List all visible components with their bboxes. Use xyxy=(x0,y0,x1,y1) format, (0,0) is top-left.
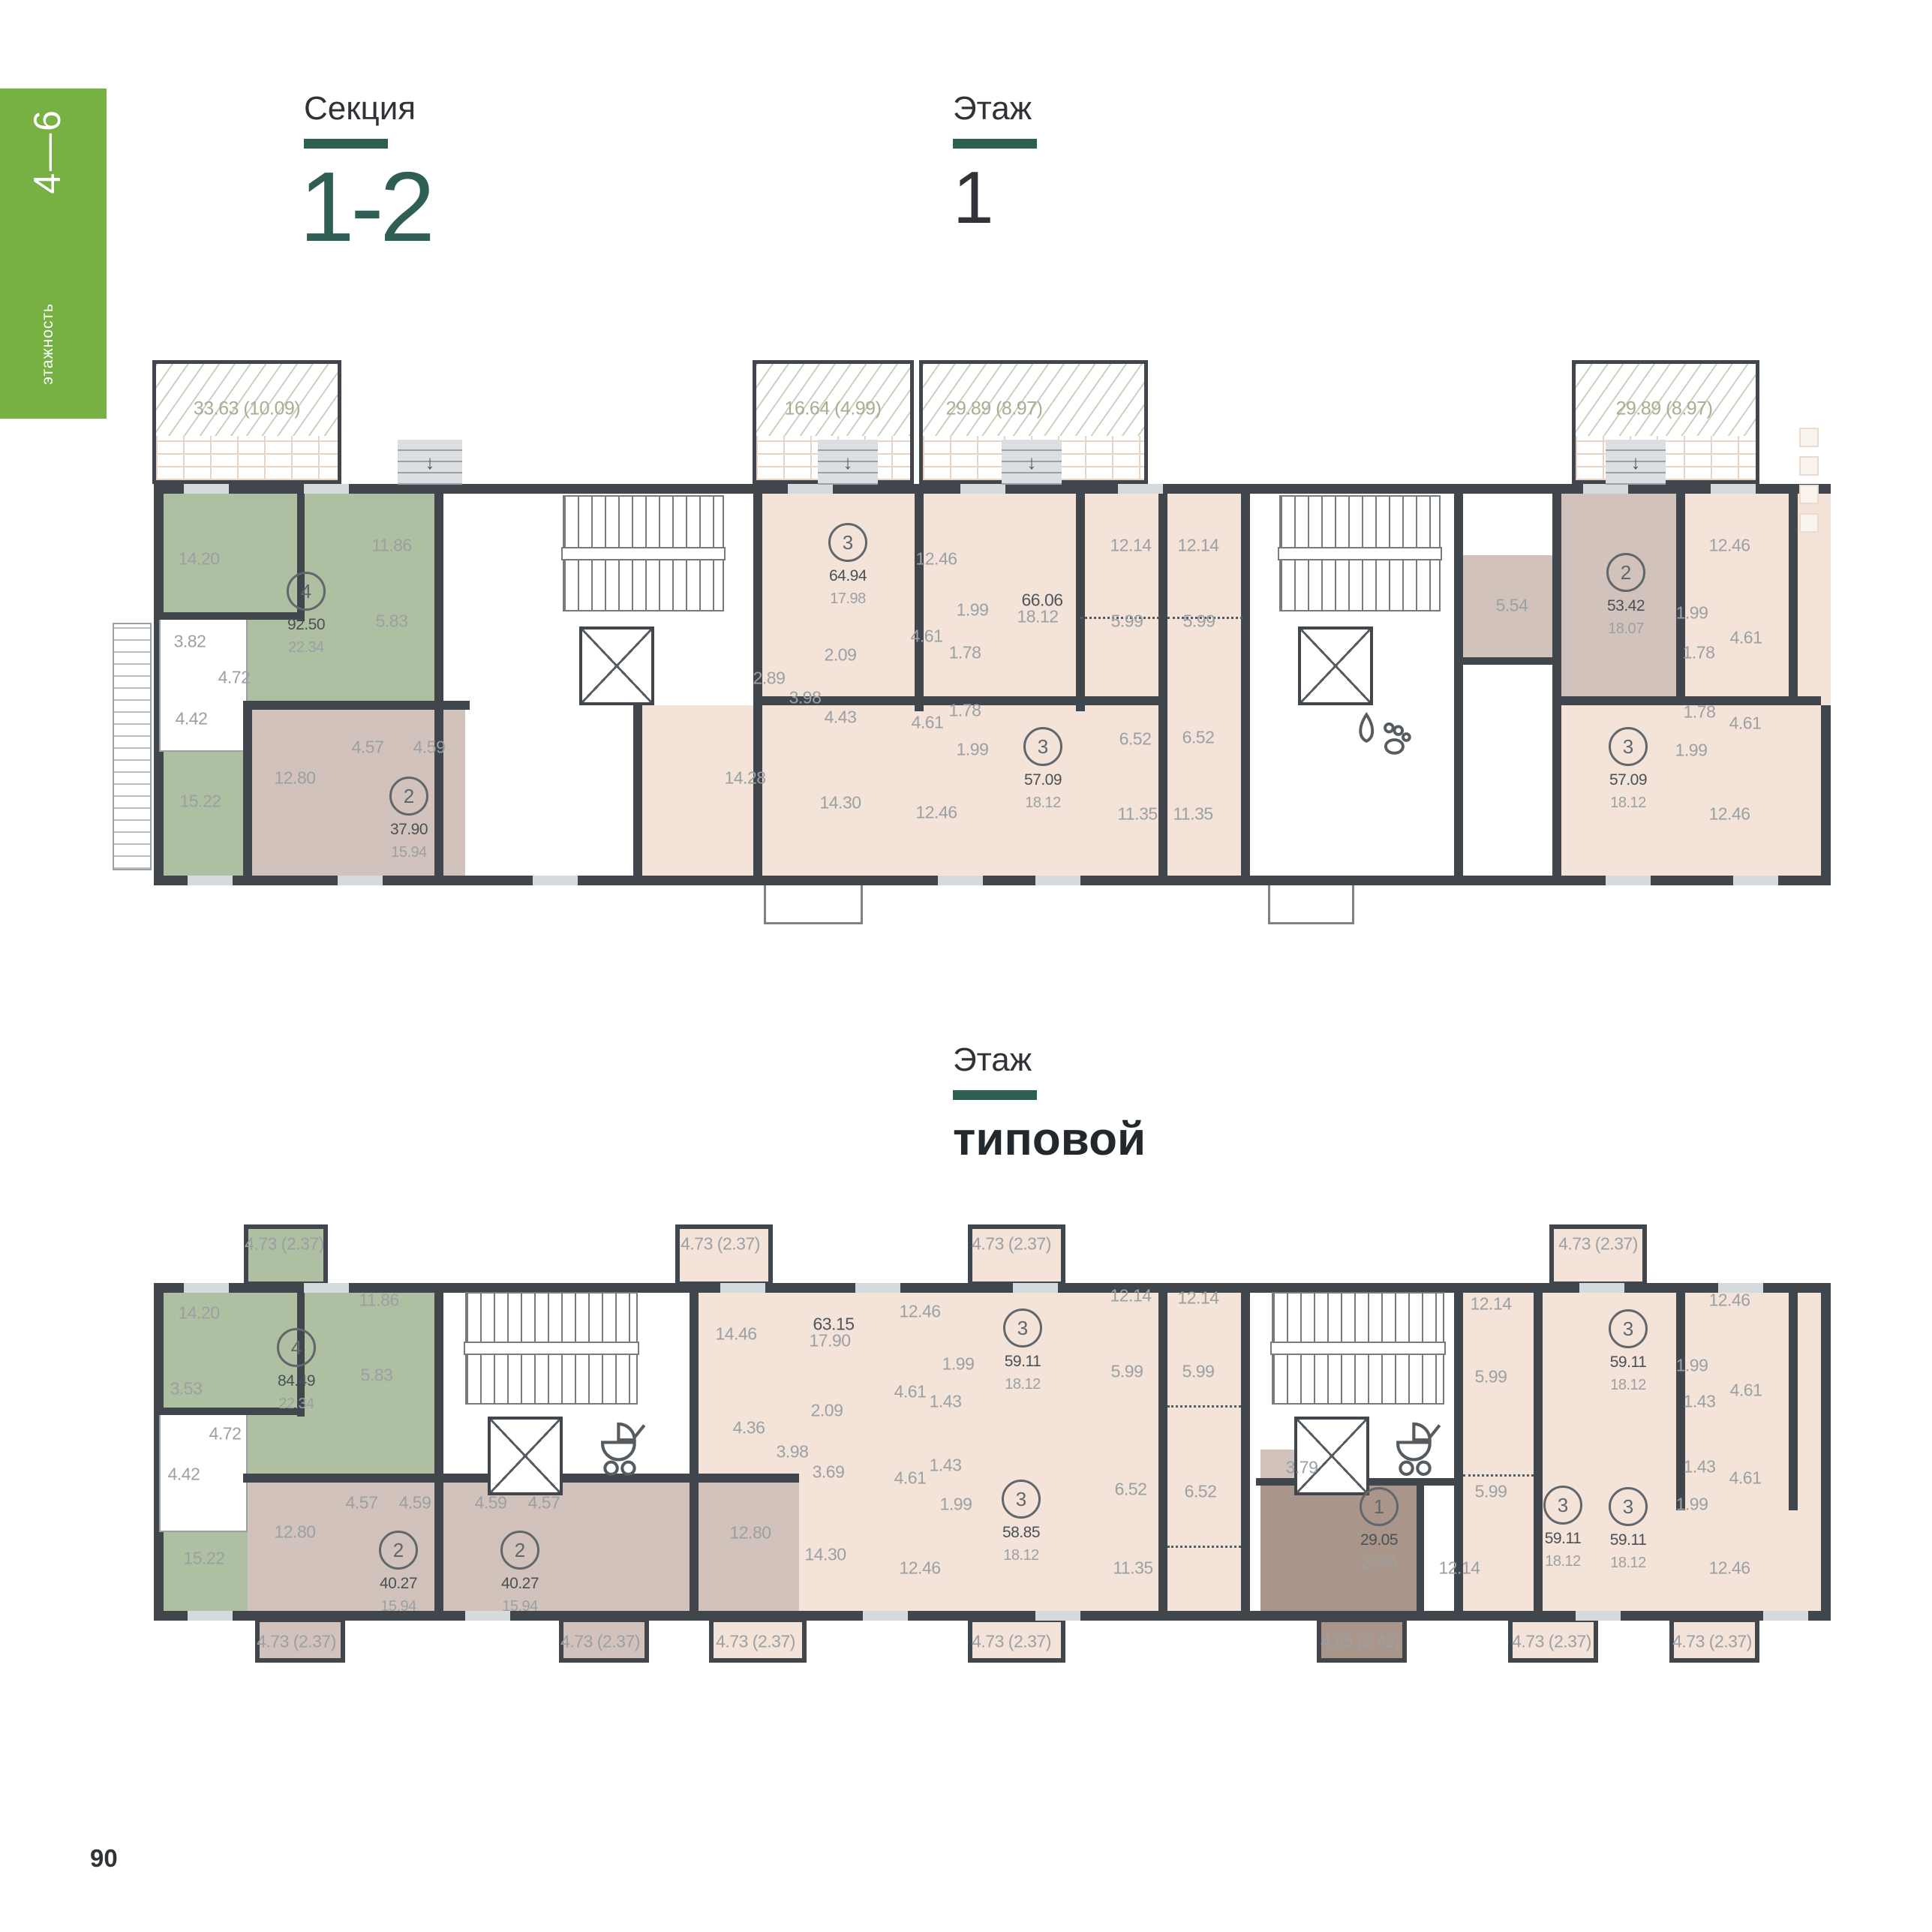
apartment-region xyxy=(1557,705,1821,876)
section-underline xyxy=(304,139,388,149)
apartment-living-area: 18.12 xyxy=(1610,1555,1646,1572)
elevator xyxy=(1294,1417,1369,1495)
room-area-label: 1.43 xyxy=(930,1457,962,1474)
legend-square xyxy=(1799,456,1819,476)
room-area-label: 12.46 xyxy=(915,804,957,822)
room-area-label: 4.73 (2.37) xyxy=(681,1236,760,1253)
window-opening xyxy=(1733,876,1778,885)
wall xyxy=(159,612,302,620)
room-area-label: 12.80 xyxy=(274,770,315,787)
apartment-total-area: 59.11 xyxy=(1610,1354,1647,1372)
apartment-living-area: 18.12 xyxy=(1025,795,1061,812)
apartment-living-area: 18.12 xyxy=(1003,1547,1039,1564)
apartment-badge: 359.1118.12 xyxy=(1609,1309,1648,1394)
dashed-divider xyxy=(1463,1474,1534,1477)
window-opening xyxy=(304,484,349,494)
wall xyxy=(1789,494,1798,705)
apartment-number: 3 xyxy=(828,523,867,562)
room-area-label: 1.78 xyxy=(1683,645,1715,662)
room-area-label: 5.99 xyxy=(1183,613,1215,630)
stroller-icon xyxy=(1388,1417,1442,1478)
room-area-label: 11.86 xyxy=(359,1292,398,1309)
window-opening xyxy=(188,1611,233,1621)
apartment-number: 3 xyxy=(1002,1480,1041,1519)
wall xyxy=(633,705,642,876)
window-opening xyxy=(338,876,383,885)
window-opening xyxy=(1606,876,1651,885)
wall xyxy=(1417,1484,1424,1611)
elevator xyxy=(488,1417,563,1495)
apartment-living-area: 22.34 xyxy=(288,639,324,657)
room-area-label: 4.43 xyxy=(825,709,857,726)
entrance-porch xyxy=(1268,882,1354,924)
room-area-label: 17.90 xyxy=(809,1333,850,1350)
terrace-area-label: 29.89 (8.97) xyxy=(1616,400,1713,419)
window-opening xyxy=(533,876,578,885)
room-area-label: 5.54 xyxy=(1496,597,1528,614)
room-area-label: 3.53 xyxy=(170,1381,203,1398)
apartment-number: 3 xyxy=(1023,727,1062,766)
dashed-divider xyxy=(1167,1546,1241,1548)
apartment-total-area: 59.11 xyxy=(1005,1353,1041,1371)
room-area-label: 14.30 xyxy=(819,795,861,812)
wall xyxy=(1459,657,1557,665)
room-area-label: 6.52 xyxy=(1185,1483,1217,1501)
apartment-total-area: 92.50 xyxy=(287,616,325,634)
wall xyxy=(434,494,443,876)
room-area-label: 1.99 xyxy=(942,1356,975,1373)
apartment-number: 3 xyxy=(1003,1309,1042,1348)
apartment-number: 4 xyxy=(287,572,326,611)
room-area-label: 4.57 xyxy=(528,1495,560,1512)
room-area-label: 14.20 xyxy=(178,551,219,568)
room-area-label: 1.99 xyxy=(957,602,989,619)
room-area-label: 1.43 xyxy=(1684,1459,1716,1476)
apartment-living-area: 18.12 xyxy=(1610,1377,1646,1394)
room-area-label: 3.98 xyxy=(777,1444,809,1461)
wall xyxy=(1076,494,1085,711)
wall xyxy=(1158,1293,1167,1611)
room-area-label: 4.61 xyxy=(894,1470,927,1487)
floor-plan-1: ↓↓↓↓33.63 (10.09)16.64 (4.99)29.89 (8.97… xyxy=(113,353,1831,945)
staircase xyxy=(563,495,724,611)
wall xyxy=(1454,494,1463,876)
terrace-area-label: 16.64 (4.99) xyxy=(785,400,882,419)
apartment-number: 3 xyxy=(1543,1486,1582,1525)
apartment-region xyxy=(248,705,465,876)
room-area-label: 4.73 (2.37) xyxy=(1512,1633,1591,1651)
room-area-label: 6.52 xyxy=(1182,729,1215,747)
room-area-label: 3.98 xyxy=(789,690,822,707)
room-area-label: 12.46 xyxy=(1708,537,1750,554)
room-area-label: 12.46 xyxy=(899,1303,940,1321)
wall xyxy=(1241,494,1250,876)
room-area-label: 4.73 (2.37) xyxy=(972,1633,1051,1651)
room-area-label: 11.35 xyxy=(1173,806,1212,823)
stroller-icon xyxy=(593,1417,647,1478)
staircase xyxy=(465,1292,638,1405)
room-area-label: 6.52 xyxy=(1119,731,1152,748)
floor-plan-typical: 4.73 (2.37)4.73 (2.37)4.73 (2.37)4.73 (2… xyxy=(113,1215,1831,1786)
window-opening xyxy=(938,876,983,885)
apartment-badge: 358.8518.12 xyxy=(1002,1480,1041,1564)
room-area-label: 12.46 xyxy=(915,551,957,568)
room-area-label: 4.73 (2.37) xyxy=(1558,1236,1638,1253)
window-opening xyxy=(720,1283,765,1293)
room-area-label: 14.20 xyxy=(178,1305,219,1322)
staircase xyxy=(1272,1292,1444,1405)
room-area-label: 12.14 xyxy=(1110,1287,1151,1305)
room-area-label: 12.46 xyxy=(1708,1292,1750,1309)
apartment-number: 3 xyxy=(1609,727,1648,766)
room-area-label: 1.78 xyxy=(1684,704,1716,721)
room-area-label: 2.09 xyxy=(825,647,857,664)
room-area-label: 5.99 xyxy=(1111,1363,1143,1381)
room-area-label: 1.99 xyxy=(940,1496,972,1513)
room-area-label: 4.85 (2.42) xyxy=(1321,1633,1400,1651)
apartment-number: 4 xyxy=(277,1328,316,1367)
entrance-steps: ↓ xyxy=(398,440,462,485)
apartment-region xyxy=(638,705,758,876)
room-area-label: 4.61 xyxy=(1729,715,1762,732)
room-area-label: 12.14 xyxy=(1470,1296,1511,1313)
room-area-label: 11.86 xyxy=(371,537,411,554)
typical-floor-underline xyxy=(953,1090,1037,1100)
room-area-label: 15.22 xyxy=(183,1550,224,1567)
apartment-badge: 240.2715.94 xyxy=(379,1531,418,1615)
room-area-label: 1.99 xyxy=(1676,605,1708,622)
page-number: 90 xyxy=(90,1844,118,1873)
window-opening xyxy=(304,1283,349,1293)
room-area-label: 4.61 xyxy=(911,628,943,645)
room-area-label: 4.59 xyxy=(413,739,446,756)
room-area-label: 12.46 xyxy=(899,1560,940,1577)
wall xyxy=(915,494,924,711)
apartment-living-area: 18.07 xyxy=(1608,620,1644,638)
elevator xyxy=(1298,626,1373,705)
legend-square xyxy=(1799,513,1819,533)
apartment-badge: 359.1118.12 xyxy=(1609,1487,1648,1572)
apartment-number: 2 xyxy=(1606,553,1645,592)
section-header: Секция 1-2 xyxy=(304,90,431,257)
room-area-label: 1.78 xyxy=(949,702,981,720)
room-area-label: 5.99 xyxy=(1111,613,1143,630)
window-opening xyxy=(1035,1611,1080,1621)
room-area-label: 2.89 xyxy=(753,670,786,687)
room-area-label: 5.99 xyxy=(1475,1369,1507,1386)
room-area-label: 1.99 xyxy=(957,741,989,759)
wall xyxy=(1534,1293,1543,1611)
staircase xyxy=(1279,495,1441,611)
room-area-label: 4.61 xyxy=(1730,629,1762,647)
room-area-label: 4.57 xyxy=(352,739,384,756)
apartment-living-area: 17.98 xyxy=(830,590,866,608)
wall xyxy=(1552,494,1561,876)
room-area-label: 12.14 xyxy=(1177,537,1218,554)
window-opening xyxy=(1035,876,1080,885)
room-area-label: 5.99 xyxy=(1475,1483,1507,1501)
apartment-living-area: 22.34 xyxy=(278,1396,314,1413)
window-opening xyxy=(188,876,233,885)
window-opening xyxy=(1576,1611,1621,1621)
room-area-label: 4.73 (2.37) xyxy=(716,1633,795,1651)
room-area-label: 4.72 xyxy=(218,669,251,687)
terrace-area-label: 33.63 (10.09) xyxy=(194,400,300,419)
room-area-label: 12.14 xyxy=(1438,1560,1480,1577)
apartment-number: 2 xyxy=(389,777,428,816)
apartment-total-area: 59.11 xyxy=(1610,1531,1647,1549)
window-opening xyxy=(1579,1283,1624,1293)
apartment-total-area: 59.11 xyxy=(1545,1530,1582,1548)
room-area-label: 4.42 xyxy=(168,1466,200,1483)
room-area-label: 4.73 (2.37) xyxy=(972,1236,1051,1253)
window-opening xyxy=(1711,484,1756,494)
terrace-area xyxy=(1572,360,1759,484)
room-area-label: 4.57 xyxy=(346,1495,378,1512)
room-area-label: 6.52 xyxy=(1115,1481,1147,1498)
wall xyxy=(690,1293,699,1611)
apartment-number: 2 xyxy=(500,1531,539,1570)
legend-square xyxy=(1799,428,1819,447)
floors-range-label: 4—6 xyxy=(26,108,69,194)
window-opening xyxy=(855,1283,900,1293)
room-area-label: 4.73 (2.37) xyxy=(1672,1633,1752,1651)
legend-square xyxy=(1799,485,1819,504)
room-area-label: 1.99 xyxy=(1676,1357,1708,1375)
apartment-badge: 484.4922.34 xyxy=(277,1328,316,1413)
room-area-label: 12.80 xyxy=(729,1525,771,1542)
apartment-total-area: 40.27 xyxy=(380,1575,417,1593)
room-area-label: 1.78 xyxy=(949,645,981,662)
room-area-label: 12.14 xyxy=(1177,1290,1218,1307)
window-opening xyxy=(863,1611,908,1621)
room-area-label: 4.73 (2.37) xyxy=(257,1633,336,1651)
room-area-label: 11.35 xyxy=(1113,1560,1152,1577)
floor-value: 1 xyxy=(953,161,1037,234)
wall xyxy=(243,705,252,876)
room-area-label: 1.43 xyxy=(930,1393,962,1411)
apartment-living-area: 15.94 xyxy=(391,844,427,861)
room-area-label: 14.28 xyxy=(724,770,765,787)
room-area-label: 12.80 xyxy=(274,1524,315,1541)
room-area-label: 11.35 xyxy=(1117,806,1157,823)
apartment-number: 3 xyxy=(1609,1309,1648,1348)
apartment-badge: 129.0522.84 xyxy=(1360,1487,1399,1572)
apartment-living-area: 22.84 xyxy=(1361,1555,1397,1572)
room-area-label: 5.99 xyxy=(1182,1363,1215,1381)
room-area-label: 18.12 xyxy=(1017,608,1058,626)
floors-word-label: этажность xyxy=(39,303,57,385)
room-area-label: 1.99 xyxy=(1676,1496,1708,1513)
apartment-number: 2 xyxy=(379,1531,418,1570)
apartment-number: 3 xyxy=(1609,1487,1648,1526)
room-area-label: 15.22 xyxy=(179,793,221,810)
apartment-badge: 253.4218.07 xyxy=(1606,553,1645,638)
apartment-badge: 359.1118.12 xyxy=(1543,1486,1582,1570)
window-opening xyxy=(1583,484,1628,494)
window-opening xyxy=(1013,1283,1058,1293)
room-area-label: 1.43 xyxy=(1684,1393,1716,1411)
room-area-label: 5.83 xyxy=(361,1367,393,1384)
floor-header: Этаж 1 xyxy=(953,90,1037,234)
apartment-badge: 357.0918.12 xyxy=(1609,727,1648,812)
room-area-label: 4.73 (2.37) xyxy=(560,1633,640,1651)
window-opening xyxy=(1118,484,1163,494)
external-stair xyxy=(113,623,152,870)
wall xyxy=(1789,1293,1798,1510)
room-area-label: 4.59 xyxy=(399,1495,431,1512)
apartment-living-area: 18.12 xyxy=(1610,795,1646,812)
apartment-region xyxy=(1163,1293,1241,1611)
floors-side-tab: 4—6 этажность xyxy=(0,89,107,419)
room-area-label: 4.61 xyxy=(894,1384,927,1401)
room-area-label: 4.61 xyxy=(1730,1382,1762,1399)
entrance-steps: ↓ xyxy=(818,440,878,485)
window-opening xyxy=(788,484,833,494)
apartment-total-area: 40.27 xyxy=(501,1575,539,1593)
room-area-label: 4.36 xyxy=(733,1420,765,1437)
wall xyxy=(1241,1293,1250,1611)
window-opening xyxy=(1763,1611,1808,1621)
apartment-badge: 492.5022.34 xyxy=(287,572,326,657)
wall xyxy=(434,1293,443,1611)
room-area-label: 4.61 xyxy=(1729,1470,1762,1487)
elevator xyxy=(579,626,654,705)
apartment-living-area: 18.12 xyxy=(1005,1376,1041,1393)
entrance-porch xyxy=(764,882,863,924)
apartment-living-area: 18.12 xyxy=(1545,1553,1581,1570)
room-area-label: 4.72 xyxy=(209,1426,242,1443)
wall xyxy=(243,701,470,710)
wall xyxy=(1676,494,1685,705)
room-area-label: 12.46 xyxy=(1708,1560,1750,1577)
window-opening xyxy=(184,1283,229,1293)
room-area-label: 3.79 xyxy=(1286,1459,1318,1477)
room-area-label: 12.46 xyxy=(1708,806,1750,823)
apartment-badge: 364.9417.98 xyxy=(828,523,867,608)
room-area-label: 4.73 (2.37) xyxy=(245,1236,324,1253)
typical-floor-value: типовой xyxy=(953,1116,1146,1163)
apartment-total-area: 57.09 xyxy=(1609,771,1647,789)
room-area-label: 1.99 xyxy=(1675,742,1708,759)
room-area-label: 4.61 xyxy=(912,714,944,732)
apartment-total-area: 64.94 xyxy=(829,567,867,585)
room-area-label: 14.30 xyxy=(804,1546,846,1564)
apartment-living-area: 15.94 xyxy=(380,1598,416,1615)
apartment-badge: 357.0918.12 xyxy=(1023,727,1062,812)
apartment-total-area: 29.05 xyxy=(1360,1531,1398,1549)
dashed-divider xyxy=(1167,1405,1241,1408)
room-area-label: 14.46 xyxy=(715,1326,756,1343)
apartment-total-area: 53.42 xyxy=(1607,597,1645,615)
room-area-label: 3.82 xyxy=(174,633,206,651)
floor-underline xyxy=(953,139,1037,149)
terrace-area xyxy=(152,360,341,484)
room-area-label: 2.09 xyxy=(811,1402,843,1420)
apartment-total-area: 84.49 xyxy=(278,1372,315,1390)
apartment-badge: 237.9015.94 xyxy=(389,777,428,861)
typical-floor-title: Этаж xyxy=(953,1041,1146,1079)
room-area-label: 12.14 xyxy=(1110,537,1151,554)
apartment-badge: 359.1118.12 xyxy=(1003,1309,1042,1393)
room-area-label: 4.59 xyxy=(475,1495,507,1512)
window-opening xyxy=(184,484,229,494)
apartment-badge: 240.2715.94 xyxy=(500,1531,539,1615)
room-area-label: 4.42 xyxy=(176,711,208,728)
apartment-number: 1 xyxy=(1360,1487,1399,1526)
typical-floor-header: Этаж типовой xyxy=(953,1041,1146,1163)
apartment-total-area: 57.09 xyxy=(1024,771,1062,789)
window-opening xyxy=(960,484,1005,494)
pet-wash-icon xyxy=(1351,709,1414,765)
floor-title: Этаж xyxy=(953,90,1037,128)
section-value: 1-2 xyxy=(299,158,431,257)
apartment-total-area: 37.90 xyxy=(390,821,428,839)
terrace-area-label: 29.89 (8.97) xyxy=(946,400,1043,419)
wall xyxy=(1158,494,1167,876)
room-area-label: 3.69 xyxy=(813,1464,845,1481)
section-title: Секция xyxy=(304,90,431,128)
apartment-living-area: 15.94 xyxy=(502,1598,538,1615)
entrance-steps: ↓ xyxy=(1606,440,1666,485)
apartment-total-area: 58.85 xyxy=(1002,1524,1040,1542)
room-area-label: 5.83 xyxy=(376,613,408,630)
entrance-steps: ↓ xyxy=(1002,440,1062,485)
